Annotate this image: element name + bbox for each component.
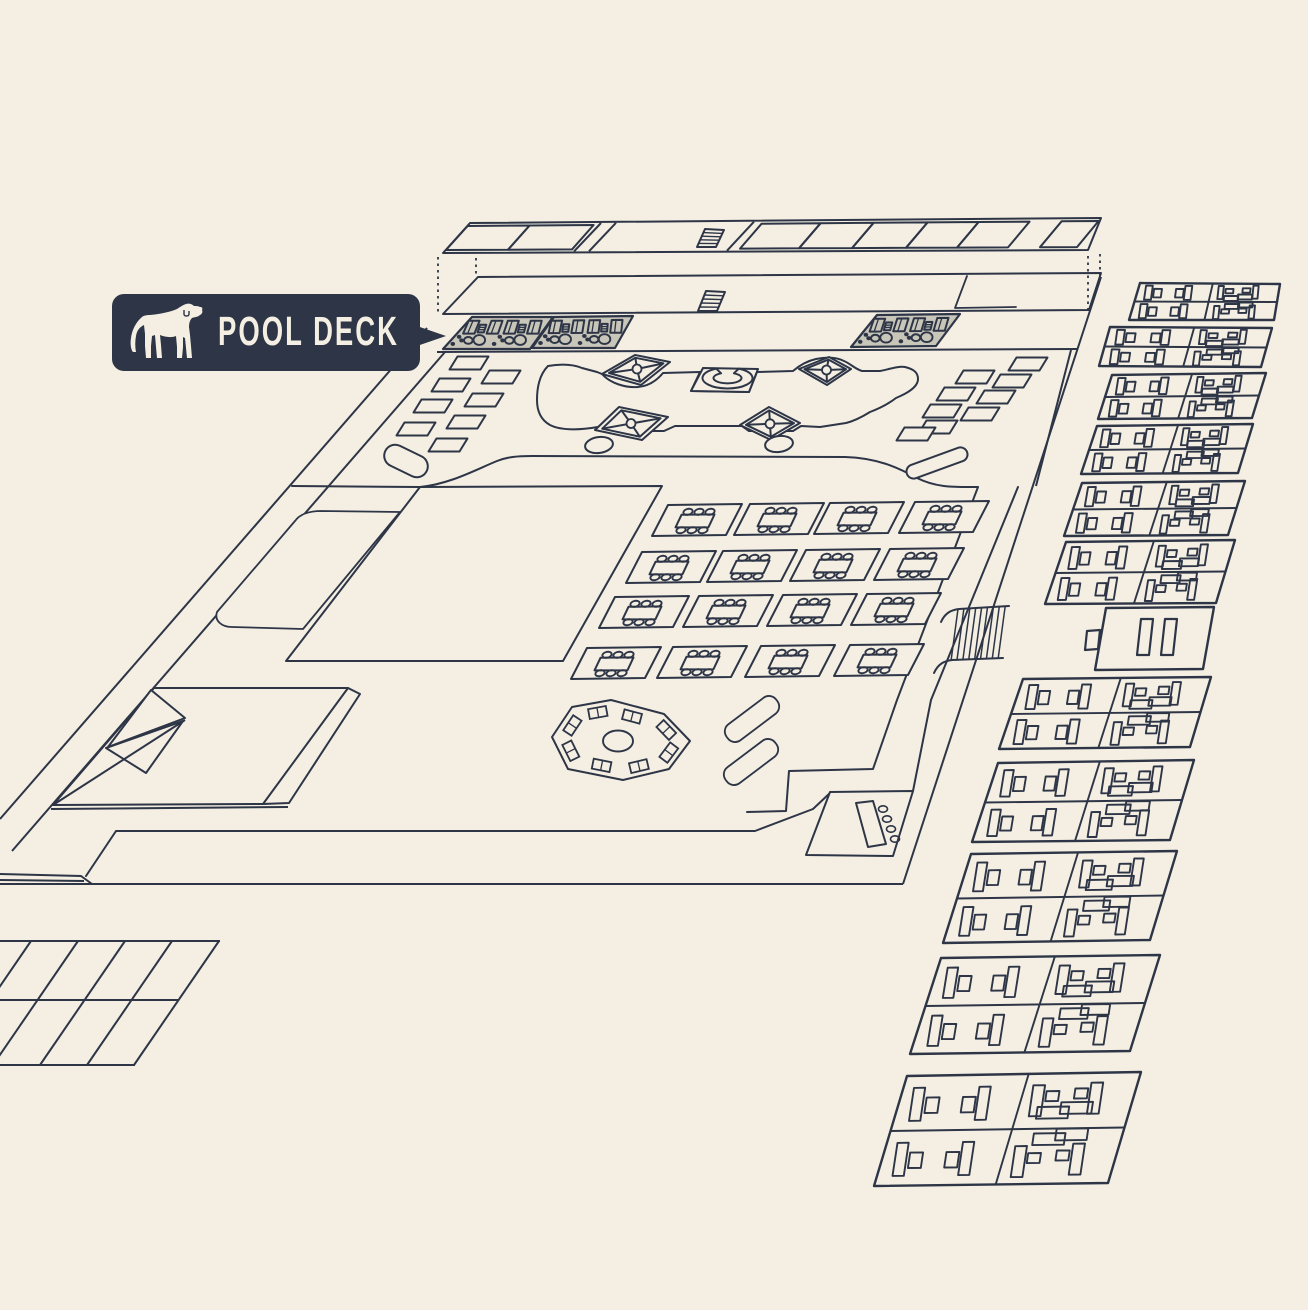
svg-text:POOL DECK: POOL DECK (218, 308, 399, 354)
